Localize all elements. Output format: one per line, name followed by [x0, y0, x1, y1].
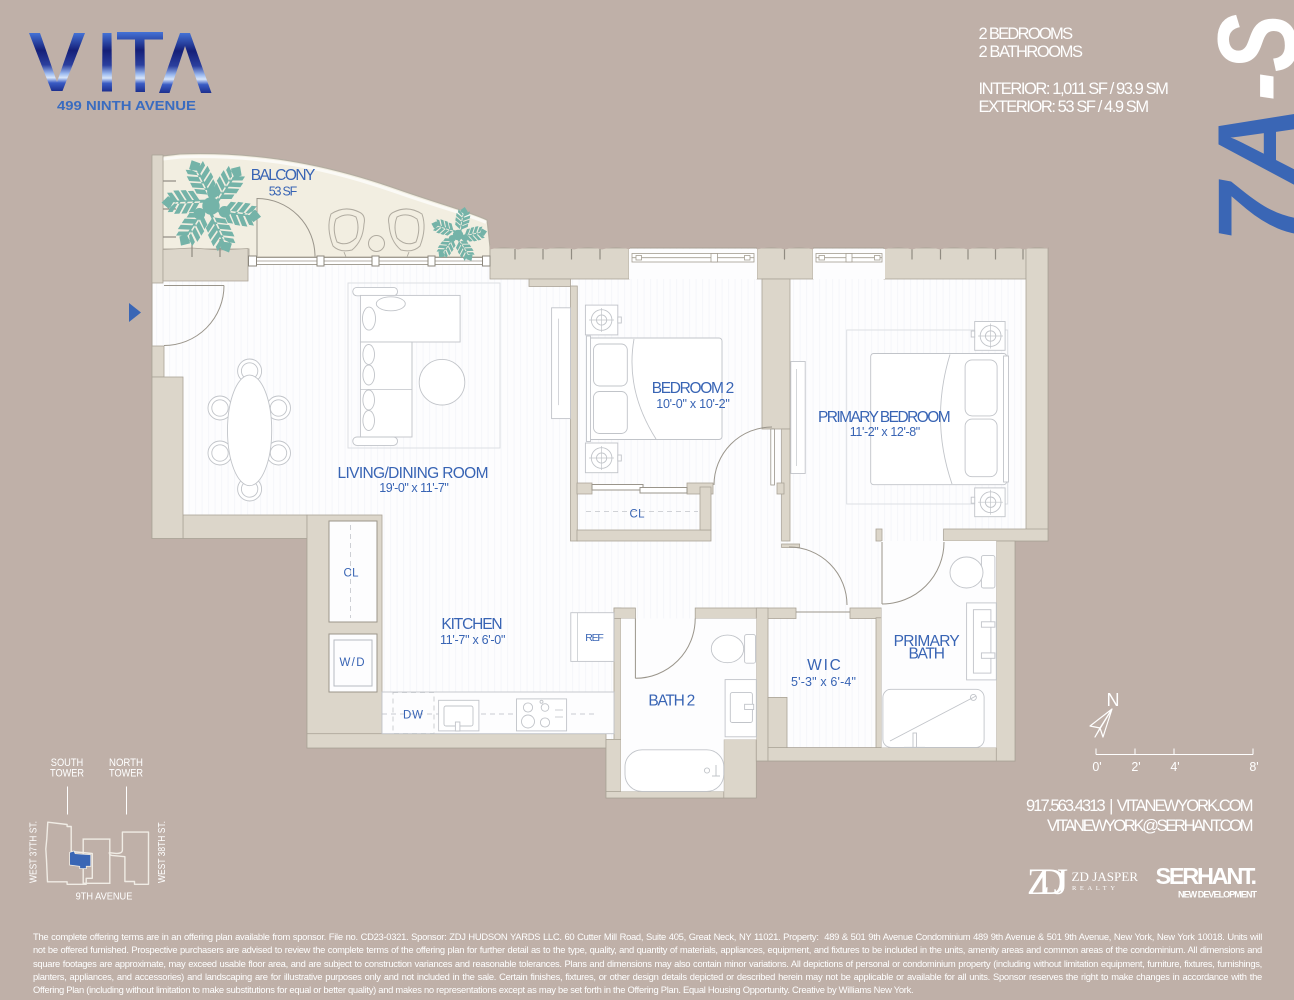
svg-text:5'-3" x 6'-4": 5'-3" x 6'-4" — [791, 675, 856, 689]
svg-text:BEDROOM 2: BEDROOM 2 — [652, 380, 735, 397]
svg-text:TOWER: TOWER — [50, 768, 84, 780]
svg-text:W/D: W/D — [340, 657, 365, 669]
svg-text:WIC: WIC — [807, 657, 841, 674]
svg-text:11'-7" x 6'-0": 11'-7" x 6'-0" — [440, 633, 505, 647]
svg-text:BALCONY: BALCONY — [251, 167, 316, 184]
svg-text:KITCHEN: KITCHEN — [441, 616, 502, 633]
svg-text:19'-0" x 11'-7": 19'-0" x 11'-7" — [379, 481, 449, 495]
svg-text:NEW DEVELOPMENT: NEW DEVELOPMENT — [1178, 890, 1258, 900]
svg-text:REALTY: REALTY — [1072, 885, 1119, 892]
svg-text:2': 2' — [1131, 760, 1140, 774]
svg-text:LIVING/DINING ROOM: LIVING/DINING ROOM — [338, 465, 489, 482]
svg-text:CL: CL — [630, 509, 646, 521]
svg-text:TOWER: TOWER — [109, 768, 143, 780]
svg-text:WEST 38TH ST.: WEST 38TH ST. — [157, 821, 168, 883]
svg-text:DW: DW — [403, 710, 423, 722]
svg-text:WEST 37TH ST.: WEST 37TH ST. — [29, 821, 40, 883]
svg-text:CL: CL — [344, 568, 360, 580]
svg-text:PRIMARY BEDROOM: PRIMARY BEDROOM — [818, 409, 951, 426]
svg-text:ZD JASPER: ZD JASPER — [1072, 869, 1139, 884]
svg-text:4': 4' — [1170, 760, 1179, 774]
svg-text:11'-2" x 12'-8": 11'-2" x 12'-8" — [850, 425, 920, 439]
svg-text:ZDJ: ZDJ — [1027, 862, 1068, 903]
svg-text:REF: REF — [585, 632, 604, 644]
svg-text:VITANEWYORK@SERHANT.COM: VITANEWYORK@SERHANT.COM — [1047, 817, 1254, 835]
svg-text:BATH 2: BATH 2 — [648, 693, 695, 710]
svg-text:8': 8' — [1249, 760, 1258, 774]
svg-text:9TH AVENUE: 9TH AVENUE — [76, 892, 133, 903]
svg-text:10'-0" x 10'-2": 10'-0" x 10'-2" — [656, 397, 730, 411]
svg-text:N: N — [1107, 690, 1120, 710]
svg-text:SERHANT.: SERHANT. — [1156, 863, 1258, 889]
svg-text:BATH: BATH — [908, 645, 945, 662]
svg-text:917.563.4313 | VITANEWYORK.C: 917.563.4313 | VITANEWYORK.COM — [1026, 797, 1254, 815]
svg-text:0': 0' — [1092, 760, 1101, 774]
svg-text:53 SF: 53 SF — [269, 185, 298, 199]
